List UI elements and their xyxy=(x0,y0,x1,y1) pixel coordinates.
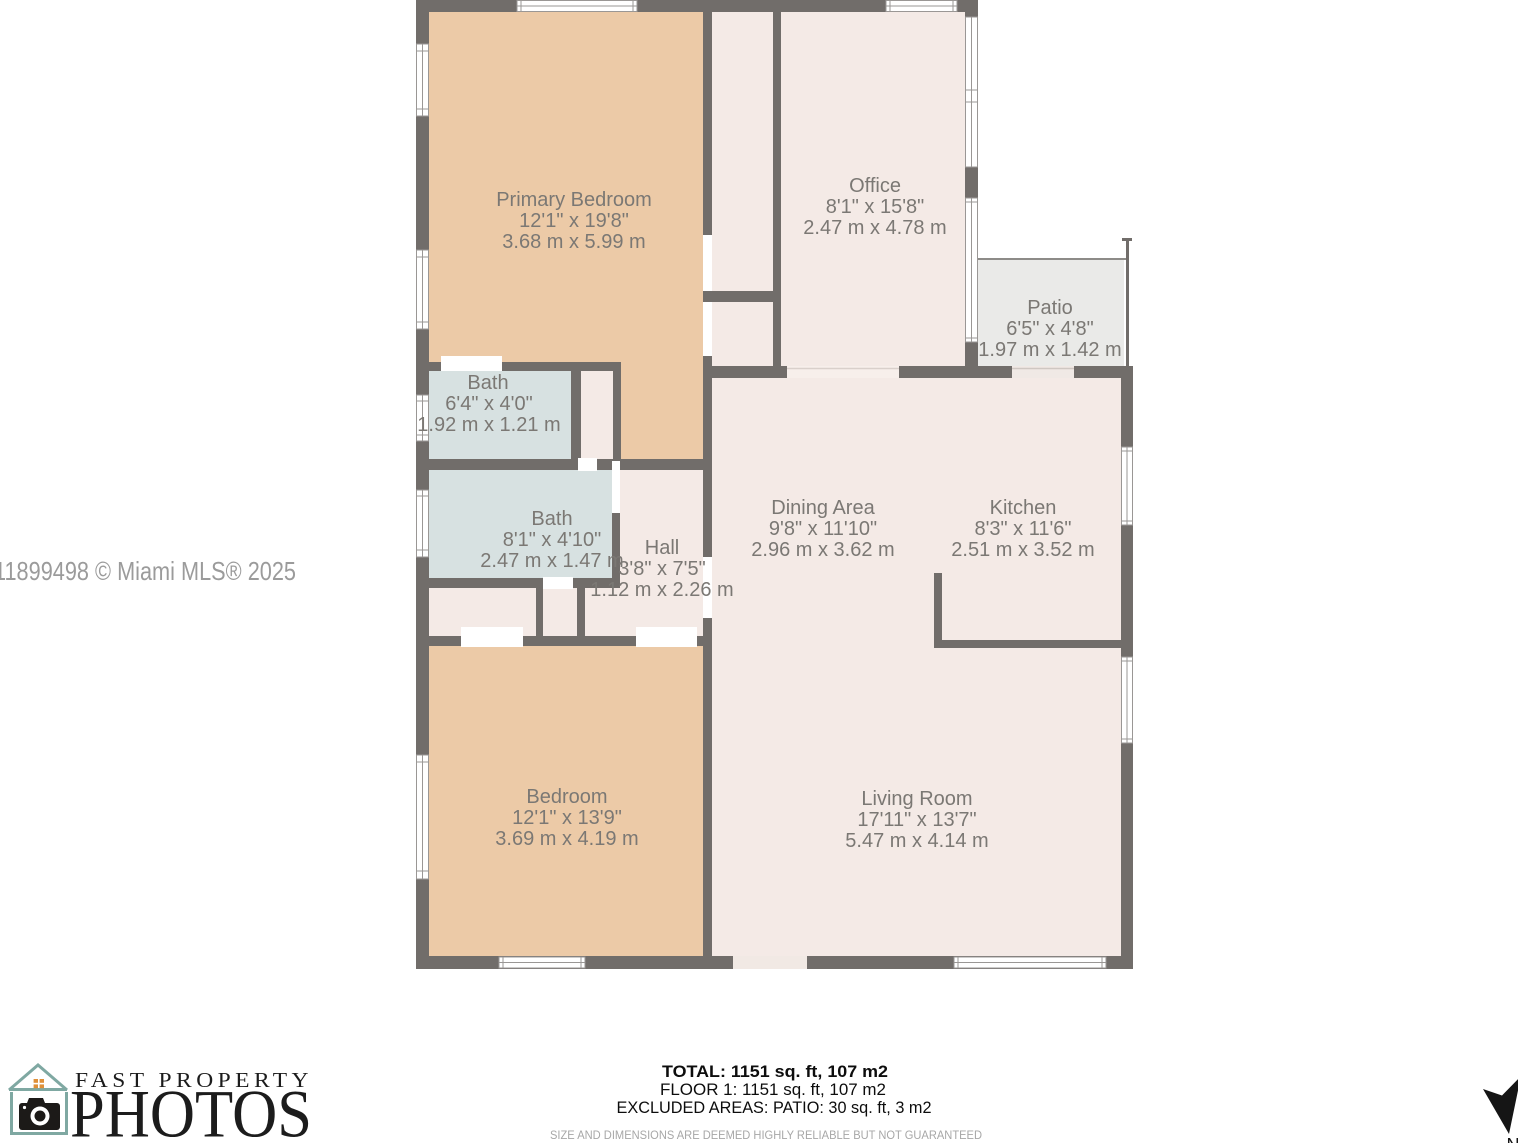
svg-text:FLOOR 1: 1151 sq. ft, 107 m2: FLOOR 1: 1151 sq. ft, 107 m2 xyxy=(660,1080,886,1099)
svg-text:2.47 m x 1.47 m: 2.47 m x 1.47 m xyxy=(480,550,623,572)
svg-text:1.92 m x 1.21 m: 1.92 m x 1.21 m xyxy=(417,414,560,436)
svg-text:12'1" x 13'9": 12'1" x 13'9" xyxy=(512,807,622,829)
svg-text:6'4" x 4'0": 6'4" x 4'0" xyxy=(445,393,532,415)
svg-text:Bedroom: Bedroom xyxy=(526,786,607,808)
svg-text:Office: Office xyxy=(849,175,901,197)
svg-text:11899498 © Miami MLS® 2025: 11899498 © Miami MLS® 2025 xyxy=(0,556,296,586)
svg-text:2.96 m x 3.62 m: 2.96 m x 3.62 m xyxy=(751,539,894,561)
svg-text:2.51 m x 3.52 m: 2.51 m x 3.52 m xyxy=(951,539,1094,561)
svg-text:12'1" x 19'8": 12'1" x 19'8" xyxy=(519,210,629,232)
svg-text:Primary Bedroom: Primary Bedroom xyxy=(496,189,652,211)
svg-text:17'11" x 13'7": 17'11" x 13'7" xyxy=(857,809,976,831)
svg-text:Patio: Patio xyxy=(1027,297,1073,319)
svg-text:SIZE AND DIMENSIONS ARE DEEMED: SIZE AND DIMENSIONS ARE DEEMED HIGHLY RE… xyxy=(550,1128,982,1142)
svg-text:1.97 m x 1.42 m: 1.97 m x 1.42 m xyxy=(978,339,1121,361)
svg-text:Hall: Hall xyxy=(645,537,679,559)
svg-text:3'8" x 7'5": 3'8" x 7'5" xyxy=(618,558,705,580)
svg-text:5.47 m x 4.14 m: 5.47 m x 4.14 m xyxy=(845,830,988,852)
svg-text:EXCLUDED AREAS: PATIO: 30 sq.: EXCLUDED AREAS: PATIO: 30 sq. ft, 3 m2 xyxy=(617,1098,932,1117)
svg-text:TOTAL: 1151 sq. ft, 107 m2: TOTAL: 1151 sq. ft, 107 m2 xyxy=(662,1062,888,1081)
svg-text:Bath: Bath xyxy=(467,372,508,394)
svg-text:Bath: Bath xyxy=(531,508,572,530)
svg-text:2.47 m x 4.78 m: 2.47 m x 4.78 m xyxy=(803,217,946,239)
svg-text:1.12 m x 2.26 m: 1.12 m x 2.26 m xyxy=(590,579,733,601)
svg-text:Kitchen: Kitchen xyxy=(990,497,1057,519)
svg-text:N: N xyxy=(1507,1135,1518,1143)
svg-text:6'5" x 4'8": 6'5" x 4'8" xyxy=(1006,318,1093,340)
svg-text:3.69 m x 4.19 m: 3.69 m x 4.19 m xyxy=(495,828,638,850)
svg-text:8'1" x 4'10": 8'1" x 4'10" xyxy=(503,529,602,551)
svg-text:Dining Area: Dining Area xyxy=(771,497,875,519)
svg-text:3.68 m x 5.99 m: 3.68 m x 5.99 m xyxy=(502,231,645,253)
svg-text:9'8" x 11'10": 9'8" x 11'10" xyxy=(769,518,877,540)
svg-text:Living Room: Living Room xyxy=(861,788,972,810)
svg-text:8'1" x 15'8": 8'1" x 15'8" xyxy=(826,196,925,218)
svg-text:PHOTOS: PHOTOS xyxy=(70,1076,312,1143)
svg-text:8'3" x 11'6": 8'3" x 11'6" xyxy=(974,518,1071,540)
